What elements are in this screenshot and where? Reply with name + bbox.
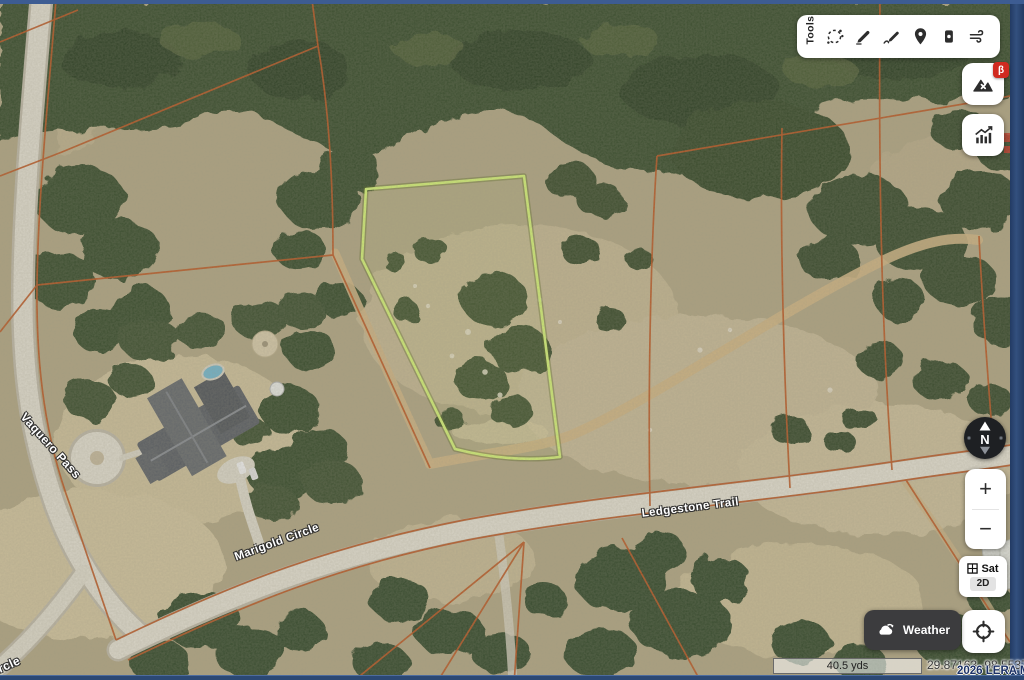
compass-control[interactable]: N [964, 417, 1006, 459]
stats-chart-icon [971, 123, 996, 148]
map-application-window: Vaquero Pass Marigold Circle Ledgestone … [0, 0, 1024, 680]
beta-badge: β [993, 62, 1009, 78]
tools-toolbar: Tools [797, 15, 1000, 58]
weather-label: Weather [903, 623, 950, 637]
basemap-toggle[interactable]: Sat 2D [959, 556, 1007, 597]
weather-button[interactable]: Weather [864, 610, 961, 650]
wind-icon [967, 26, 988, 47]
highlighter-icon [853, 26, 874, 47]
cloud-refresh-icon [875, 619, 897, 641]
window-frame-right [1010, 0, 1024, 680]
map-pin-icon [910, 26, 931, 47]
stats-chart-button[interactable] [962, 114, 1004, 156]
compass-north-label: N [980, 432, 989, 447]
satellite-grid-icon [967, 563, 978, 574]
wind-tool-button[interactable] [965, 25, 989, 49]
map-art [0, 0, 1024, 680]
map-pin-tool-button[interactable] [908, 25, 932, 49]
sat-label: Sat [981, 563, 998, 575]
window-frame-top [0, 0, 1024, 4]
compass-north-icon: N [964, 417, 1006, 459]
scale-bar: 40.5 yds [773, 658, 922, 674]
draw-path-icon [881, 26, 902, 47]
terrain-layers-icon [970, 71, 996, 97]
lasso-select-icon [824, 26, 845, 47]
locate-button[interactable] [962, 610, 1005, 653]
mls-watermark: 2026 LERA MLS [957, 665, 1024, 677]
mode-2d-button[interactable]: 2D [970, 577, 997, 591]
highlighter-tool-button[interactable] [851, 25, 875, 49]
draw-path-tool-button[interactable] [880, 25, 904, 49]
window-frame-bottom [0, 675, 1024, 680]
crosshair-icon [971, 619, 996, 644]
map-canvas[interactable] [0, 0, 1024, 680]
zoom-control: + − [965, 469, 1006, 549]
scale-label: 40.5 yds [827, 660, 869, 672]
lasso-select-tool-button[interactable] [823, 25, 847, 49]
label-tag-tool-button[interactable] [937, 25, 961, 49]
satellite-grain-texture [0, 0, 1024, 680]
tools-label: Tools [805, 29, 817, 44]
zoom-out-button[interactable]: − [965, 510, 1006, 550]
label-tag-icon [938, 26, 959, 47]
zoom-in-button[interactable]: + [965, 469, 1006, 509]
